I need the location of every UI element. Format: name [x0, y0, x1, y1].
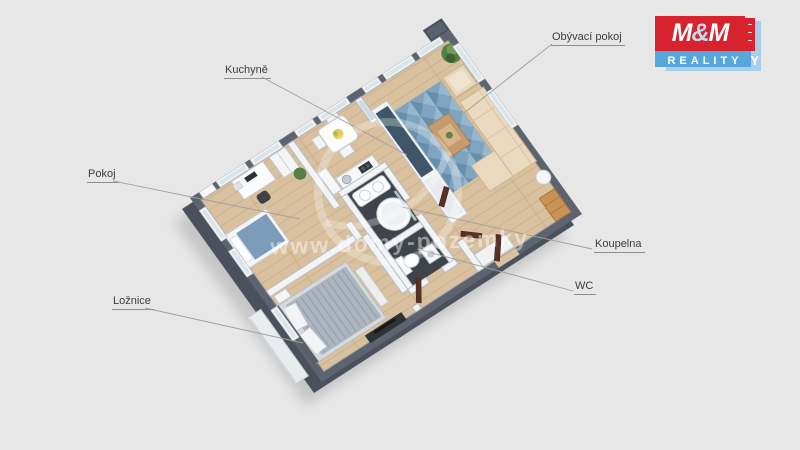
room-label-loznice: Ložnice	[112, 295, 154, 310]
logo-mark: M&M	[655, 16, 745, 51]
logo-ampersand: &	[691, 19, 708, 47]
room-label-wc: WC	[574, 280, 596, 295]
room-label-kuchyne: Kuchyně	[224, 64, 271, 79]
room-label-koupelna: Koupelna	[594, 238, 645, 253]
logo-subtitle: REALITY	[663, 55, 742, 67]
logo-m-left: M	[672, 19, 692, 47]
room-label-obyvaci-pokoj: Obývací pokoj	[551, 31, 625, 46]
agency-logo: Y M&M REALITY	[655, 16, 767, 72]
floorplan-page: { "page": { "background_color": "#e7e7e8…	[0, 0, 800, 450]
room-label-pokoj: Pokoj	[87, 168, 119, 183]
logo-m-right: M	[709, 19, 729, 47]
logo-shadow-letter: Y	[750, 53, 759, 68]
logo-side-tab	[745, 18, 755, 51]
logo-subtitle-bar: REALITY	[655, 51, 751, 67]
